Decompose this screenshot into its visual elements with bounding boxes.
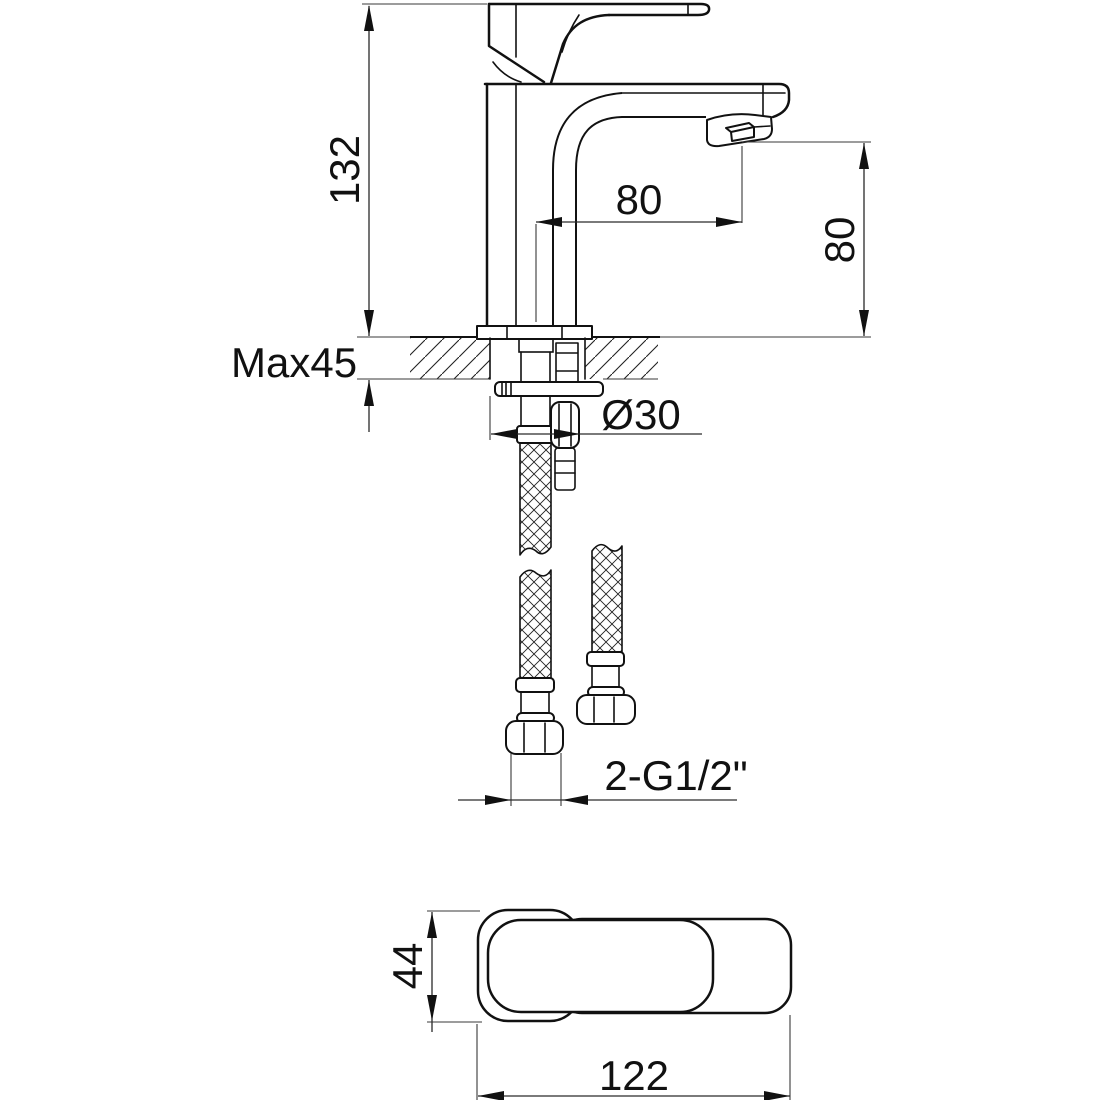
dimension-spout-reach: 80 — [536, 146, 742, 322]
spout-height-arrow-up-icon — [859, 143, 869, 169]
handle-lever-top-edge — [489, 4, 709, 15]
max45-arrow-up-icon — [364, 380, 374, 406]
base-flange-body — [477, 326, 592, 339]
spout-aerator — [707, 114, 772, 146]
hose-right-braid — [592, 545, 622, 652]
shank-dia-label: Ø30 — [601, 391, 680, 438]
dimension-top-view-length: 122 — [477, 1015, 790, 1100]
stud-lower-threads — [555, 461, 575, 473]
spout-arc-outer — [553, 93, 622, 326]
spout-height-arrow-down-icon — [859, 310, 869, 336]
hose-left-braid-upper — [520, 443, 551, 555]
mounting-nut-body — [551, 402, 579, 448]
top-view-handle-lever — [488, 920, 713, 1012]
depth-arrow-down-icon — [427, 995, 437, 1021]
dimension-max-deck-thickness: Max45 — [231, 339, 374, 432]
faucet-top-view: 44 122 — [384, 910, 791, 1100]
height-arrow-up-icon — [364, 5, 374, 31]
max45-label: Max45 — [231, 339, 357, 386]
shank-dia-arrow-left-icon — [491, 429, 517, 439]
height-arrow-down-icon — [364, 310, 374, 336]
spout-reach-arrow-right-icon — [716, 217, 742, 227]
thread-arrow-right-icon — [485, 795, 511, 805]
depth-arrow-up-icon — [427, 912, 437, 938]
threaded-stud-upper — [556, 343, 578, 382]
hose-left-hex-nut-body — [506, 721, 563, 754]
spout-reach-label: 80 — [616, 176, 663, 223]
thread-label: 2-G1/2" — [604, 752, 747, 799]
dimension-overall-height: 132 — [321, 4, 487, 336]
aerator-edge-line — [754, 126, 770, 127]
depth-label: 44 — [384, 943, 431, 990]
handle-lever-underside — [551, 15, 609, 83]
hose-right-tube — [592, 666, 619, 688]
supply-hose-right — [577, 545, 635, 724]
shank-sides-upper — [521, 352, 550, 382]
hose-right-hex-nut — [577, 695, 635, 724]
threaded-stud-lower — [555, 448, 575, 490]
hose-left-ferrule — [516, 678, 554, 692]
shank-collar-upper — [519, 339, 553, 352]
hose-right-hex-nut-body — [577, 695, 635, 724]
faucet-handle — [489, 4, 709, 83]
technical-drawing-page: 132 Max45 80 80 Ø30 2-G1/2" — [0, 0, 1100, 1100]
base-flange — [477, 326, 592, 339]
dimension-thread-connections: 2-G1/2" — [458, 752, 748, 806]
body-top-and-spout-edge — [485, 84, 789, 117]
hose-left-tube — [521, 692, 549, 714]
length-arrow-left-icon — [478, 1091, 504, 1100]
shank-sides-lower — [521, 396, 550, 426]
dimension-top-view-depth: 44 — [384, 911, 482, 1032]
spout-reach-arrow-left-icon — [536, 217, 562, 227]
dimension-spout-height: 80 — [742, 142, 871, 336]
length-arrow-right-icon — [764, 1091, 790, 1100]
hose-right-ferrule — [587, 652, 624, 666]
mounting-nut — [551, 402, 579, 448]
thread-arrow-left-icon — [562, 795, 588, 805]
stud-lower-body — [555, 448, 575, 490]
faucet-technical-drawing: 132 Max45 80 80 Ø30 2-G1/2" — [0, 0, 1100, 1100]
height-dim-label: 132 — [321, 135, 368, 205]
countertop-hatch-right — [585, 338, 658, 379]
mounting-hole-edges — [490, 338, 585, 379]
countertop-hatch-left — [410, 338, 490, 379]
hose-left-hex-nut — [506, 721, 563, 754]
spout-height-label: 80 — [816, 217, 863, 264]
hose-left-braid-lower — [520, 570, 551, 678]
countertop-section — [357, 337, 871, 379]
length-label: 122 — [599, 1052, 669, 1099]
supply-hose-left — [506, 443, 563, 754]
